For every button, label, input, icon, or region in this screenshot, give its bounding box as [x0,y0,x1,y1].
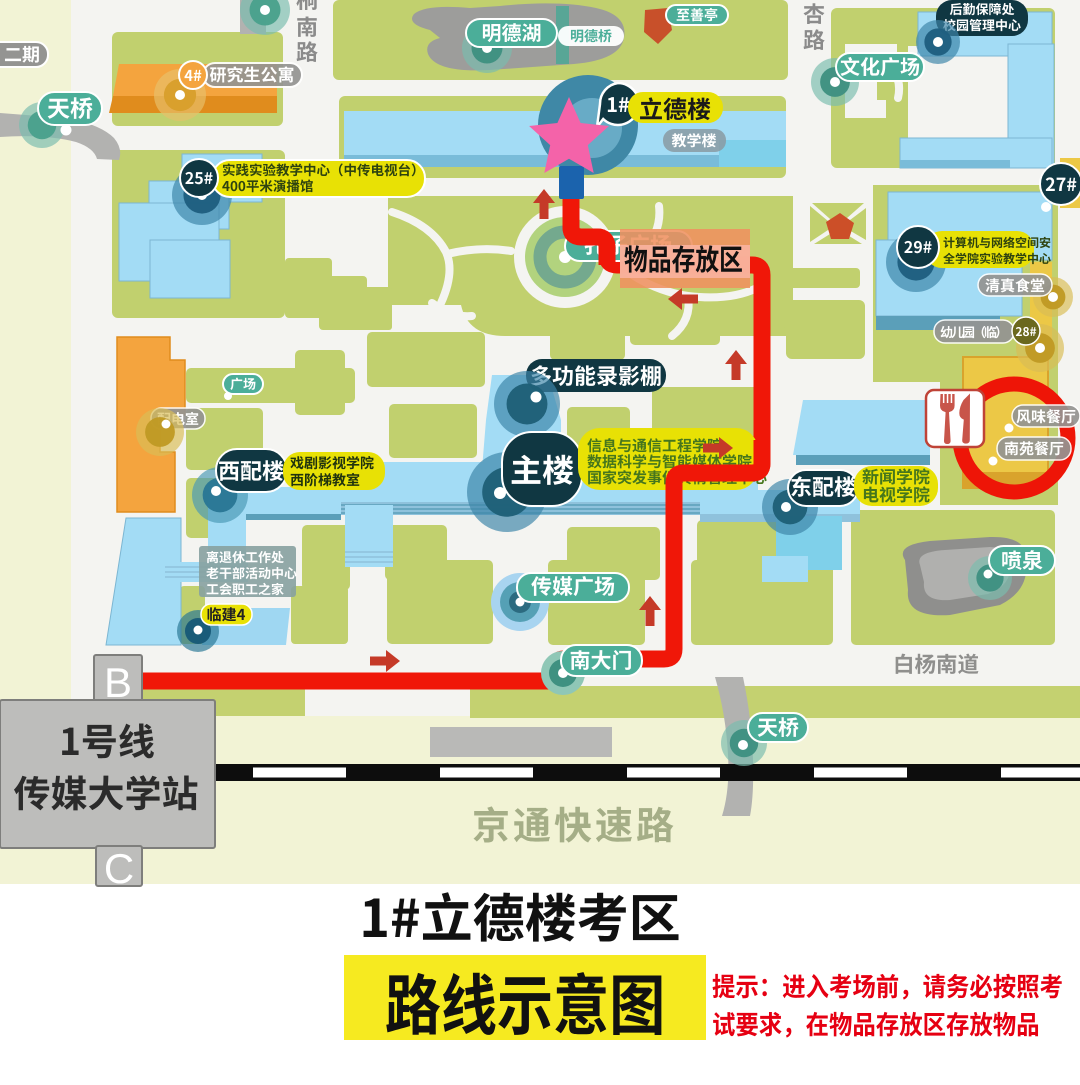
svg-text:B: B [104,659,132,706]
svg-text:C: C [104,845,134,892]
